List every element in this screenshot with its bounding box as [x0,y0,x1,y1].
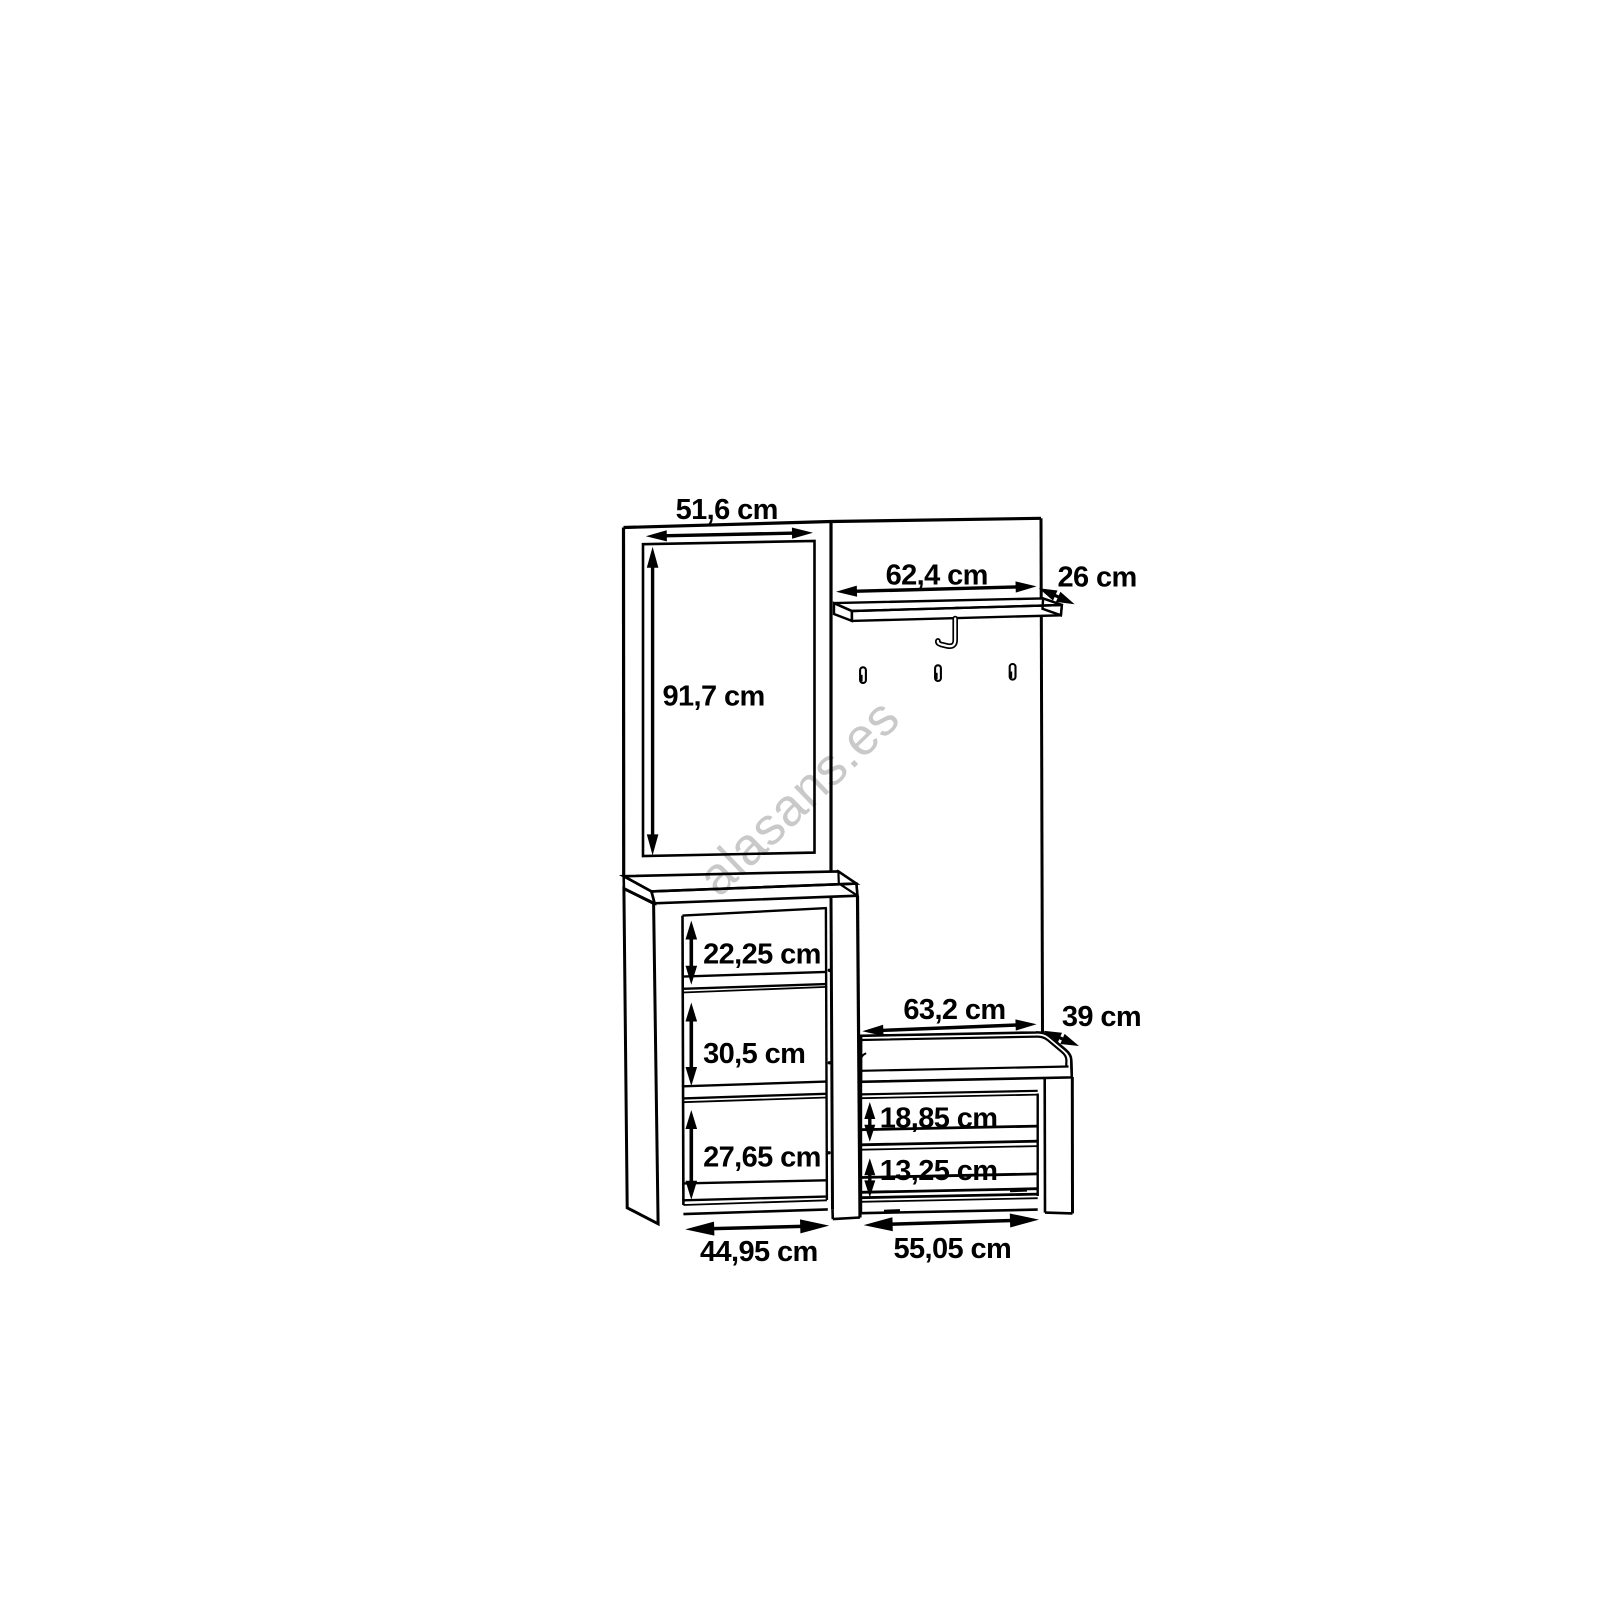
svg-text:44,95 cm: 44,95 cm [700,1236,818,1268]
svg-text:91,7 cm: 91,7 cm [663,681,765,713]
svg-text:13,25 cm: 13,25 cm [880,1155,998,1187]
svg-text:51,6 cm: 51,6 cm [676,494,778,526]
svg-text:63,2 cm: 63,2 cm [903,994,1005,1026]
svg-text:55,05 cm: 55,05 cm [894,1233,1012,1265]
svg-text:22,25 cm: 22,25 cm [703,939,821,971]
svg-text:26 cm: 26 cm [1058,561,1137,593]
svg-text:18,85 cm: 18,85 cm [880,1103,998,1135]
svg-text:27,65 cm: 27,65 cm [703,1141,821,1173]
svg-text:62,4 cm: 62,4 cm [886,559,988,591]
svg-text:30,5 cm: 30,5 cm [703,1038,805,1070]
svg-text:39 cm: 39 cm [1062,1001,1141,1033]
